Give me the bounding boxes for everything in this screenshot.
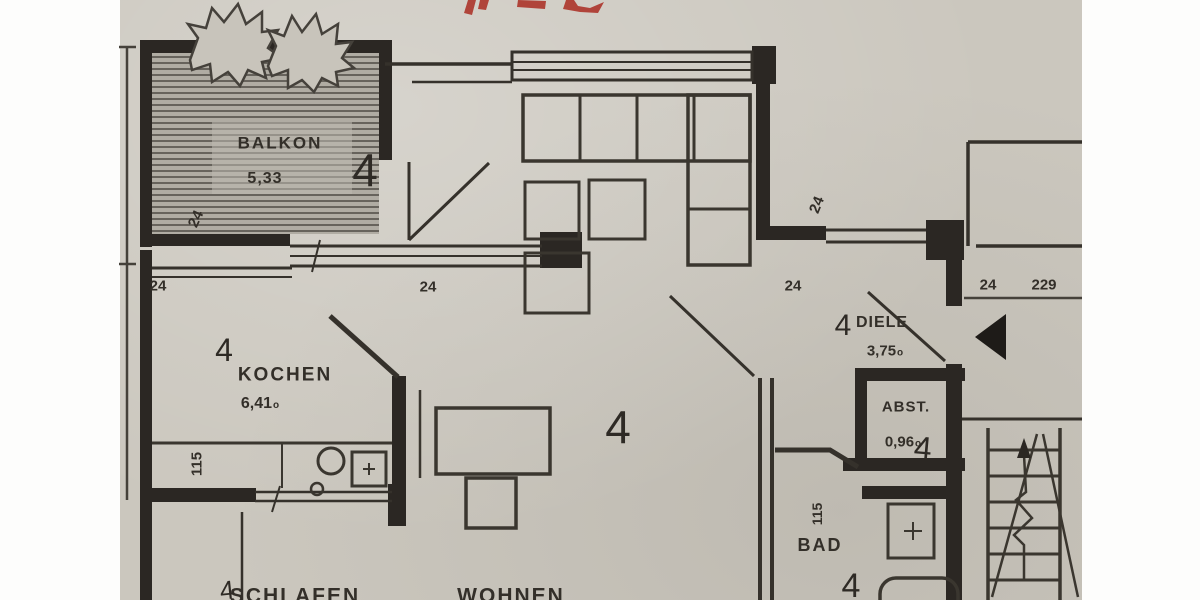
area-suffix: o (897, 348, 903, 359)
dimension-kochen-left: 115 (190, 452, 205, 476)
room-name-wohnen: WOHNEN (457, 586, 565, 600)
room-name-bad: BAD (798, 536, 843, 554)
dimension-diele-wall-right: 24 (980, 278, 997, 293)
room-name-diele: DIELE (856, 315, 908, 331)
dimension-diele-wall-left: 24 (785, 279, 802, 294)
unit-number-wohnen: 4 (605, 404, 631, 450)
unit-number-balkon: 4 (352, 147, 378, 193)
dimension-bad-wall: 115 (810, 503, 824, 526)
unit-number-kochen: 4 (215, 334, 233, 366)
dimension-corridor-width: 229 (1031, 278, 1056, 293)
unit-number-bad: 4 (842, 569, 861, 600)
unit-number-abst: 4 (913, 431, 934, 464)
area-value: 3,75 (867, 343, 896, 360)
unit-number-schlafen: 4 (218, 576, 235, 600)
floorplan-page: BALKON 5,33 4 24 4 KOCHEN 6,41o 24 24 11… (0, 0, 1200, 600)
dimension-diele-top: 24 (807, 194, 827, 215)
dimension-kochen-top-left: 24 (150, 279, 167, 294)
labels-layer: BALKON 5,33 4 24 4 KOCHEN 6,41o 24 24 11… (0, 0, 1200, 600)
room-area-balkon: 5,33 (247, 171, 282, 187)
unit-number-diele: 4 (835, 311, 852, 341)
room-name-schlafen: SCHLAFEN (230, 586, 360, 600)
room-name-abst: ABST. (882, 400, 930, 415)
dimension-kochen-top-right: 24 (420, 280, 437, 295)
area-suffix: o (273, 400, 279, 411)
area-value: 6,41 (241, 395, 272, 412)
area-value: 0,96 (885, 434, 914, 451)
room-area-kochen: 6,41o (241, 396, 279, 412)
room-area-diele: 3,75o (867, 344, 903, 359)
room-name-balkon: BALKON (238, 135, 323, 152)
dimension-balkon-left: 24 (186, 208, 207, 229)
room-name-kochen: KOCHEN (238, 366, 332, 385)
